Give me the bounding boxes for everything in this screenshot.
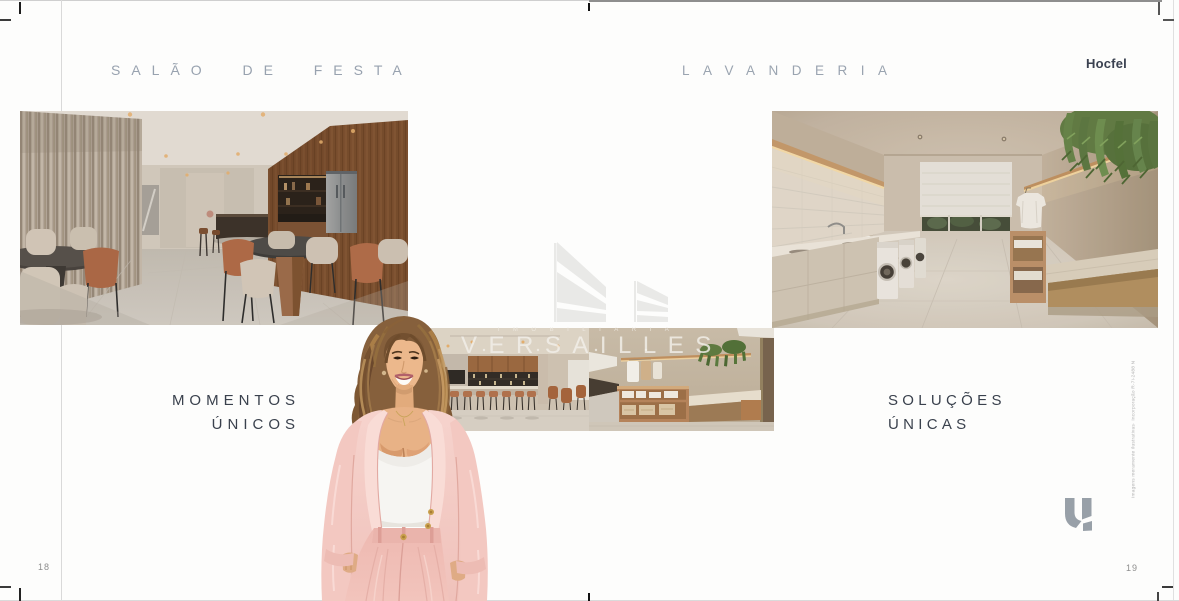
svg-text:Imagens meramente ilustrativas: Imagens meramente ilustrativas· Incorpor… bbox=[1131, 360, 1137, 498]
svg-text:VERSAILLES: VERSAILLES bbox=[461, 332, 723, 359]
